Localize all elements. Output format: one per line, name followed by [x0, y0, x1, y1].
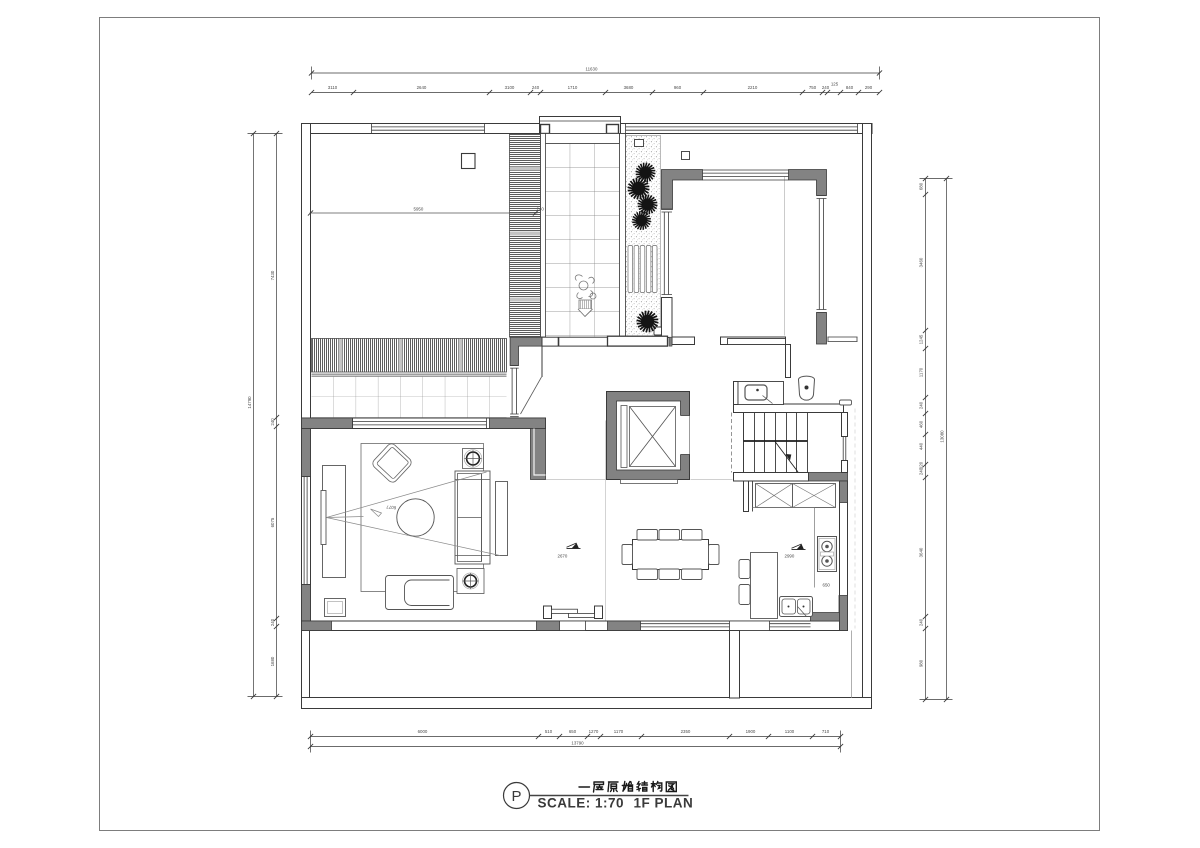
- svg-text:2670: 2670: [558, 554, 568, 559]
- svg-text:510: 510: [545, 729, 553, 734]
- svg-text:240: 240: [919, 618, 924, 626]
- svg-text:240: 240: [919, 401, 924, 409]
- svg-text:240: 240: [532, 85, 540, 90]
- svg-text:125: 125: [831, 82, 839, 87]
- svg-text:3640: 3640: [919, 547, 924, 557]
- svg-text:11630: 11630: [586, 67, 598, 72]
- svg-text:1F PLAN: 1F PLAN: [634, 796, 694, 811]
- svg-text:P: P: [511, 788, 521, 805]
- svg-text:960: 960: [674, 85, 682, 90]
- svg-text:13790: 13790: [571, 741, 584, 746]
- svg-text:3100: 3100: [505, 85, 515, 90]
- svg-text:650: 650: [569, 729, 577, 734]
- svg-text:650: 650: [823, 583, 831, 588]
- svg-text:240: 240: [270, 618, 275, 626]
- svg-text:1710: 1710: [568, 85, 578, 90]
- svg-text:SCALE: 1:70: SCALE: 1:70: [538, 796, 625, 811]
- svg-text:1680: 1680: [270, 656, 275, 666]
- svg-text:1170: 1170: [919, 367, 924, 377]
- svg-text:6000: 6000: [418, 729, 428, 734]
- svg-text:440: 440: [919, 442, 924, 450]
- svg-text:7430: 7430: [270, 270, 275, 280]
- svg-text:460: 460: [919, 420, 924, 428]
- svg-text:2640: 2640: [417, 85, 427, 90]
- svg-text:840: 840: [846, 85, 854, 90]
- svg-text:3460: 3460: [919, 257, 924, 267]
- svg-text:1245: 1245: [919, 334, 924, 344]
- svg-text:1270: 1270: [589, 729, 599, 734]
- svg-text:6075: 6075: [270, 517, 275, 527]
- svg-text:1170: 1170: [614, 729, 624, 734]
- svg-text:1100: 1100: [785, 729, 795, 734]
- svg-text:240: 240: [537, 207, 545, 212]
- svg-text:710: 710: [822, 729, 830, 734]
- svg-text:2990: 2990: [785, 554, 795, 559]
- svg-text:5950: 5950: [414, 207, 424, 212]
- svg-text:1900: 1900: [746, 729, 756, 734]
- svg-text:750: 750: [809, 85, 817, 90]
- svg-text:240: 240: [270, 418, 275, 426]
- svg-text:980: 980: [919, 659, 924, 667]
- svg-text:13080: 13080: [940, 430, 945, 443]
- svg-text:2210: 2210: [748, 85, 758, 90]
- svg-text:240: 240: [822, 85, 830, 90]
- svg-text:2350: 2350: [681, 729, 691, 734]
- svg-text:3680: 3680: [624, 85, 634, 90]
- svg-text:290: 290: [865, 85, 873, 90]
- svg-text:240: 240: [919, 467, 924, 475]
- svg-text:14790: 14790: [247, 396, 252, 409]
- svg-text:680: 680: [919, 182, 924, 190]
- svg-text:3110: 3110: [328, 85, 338, 90]
